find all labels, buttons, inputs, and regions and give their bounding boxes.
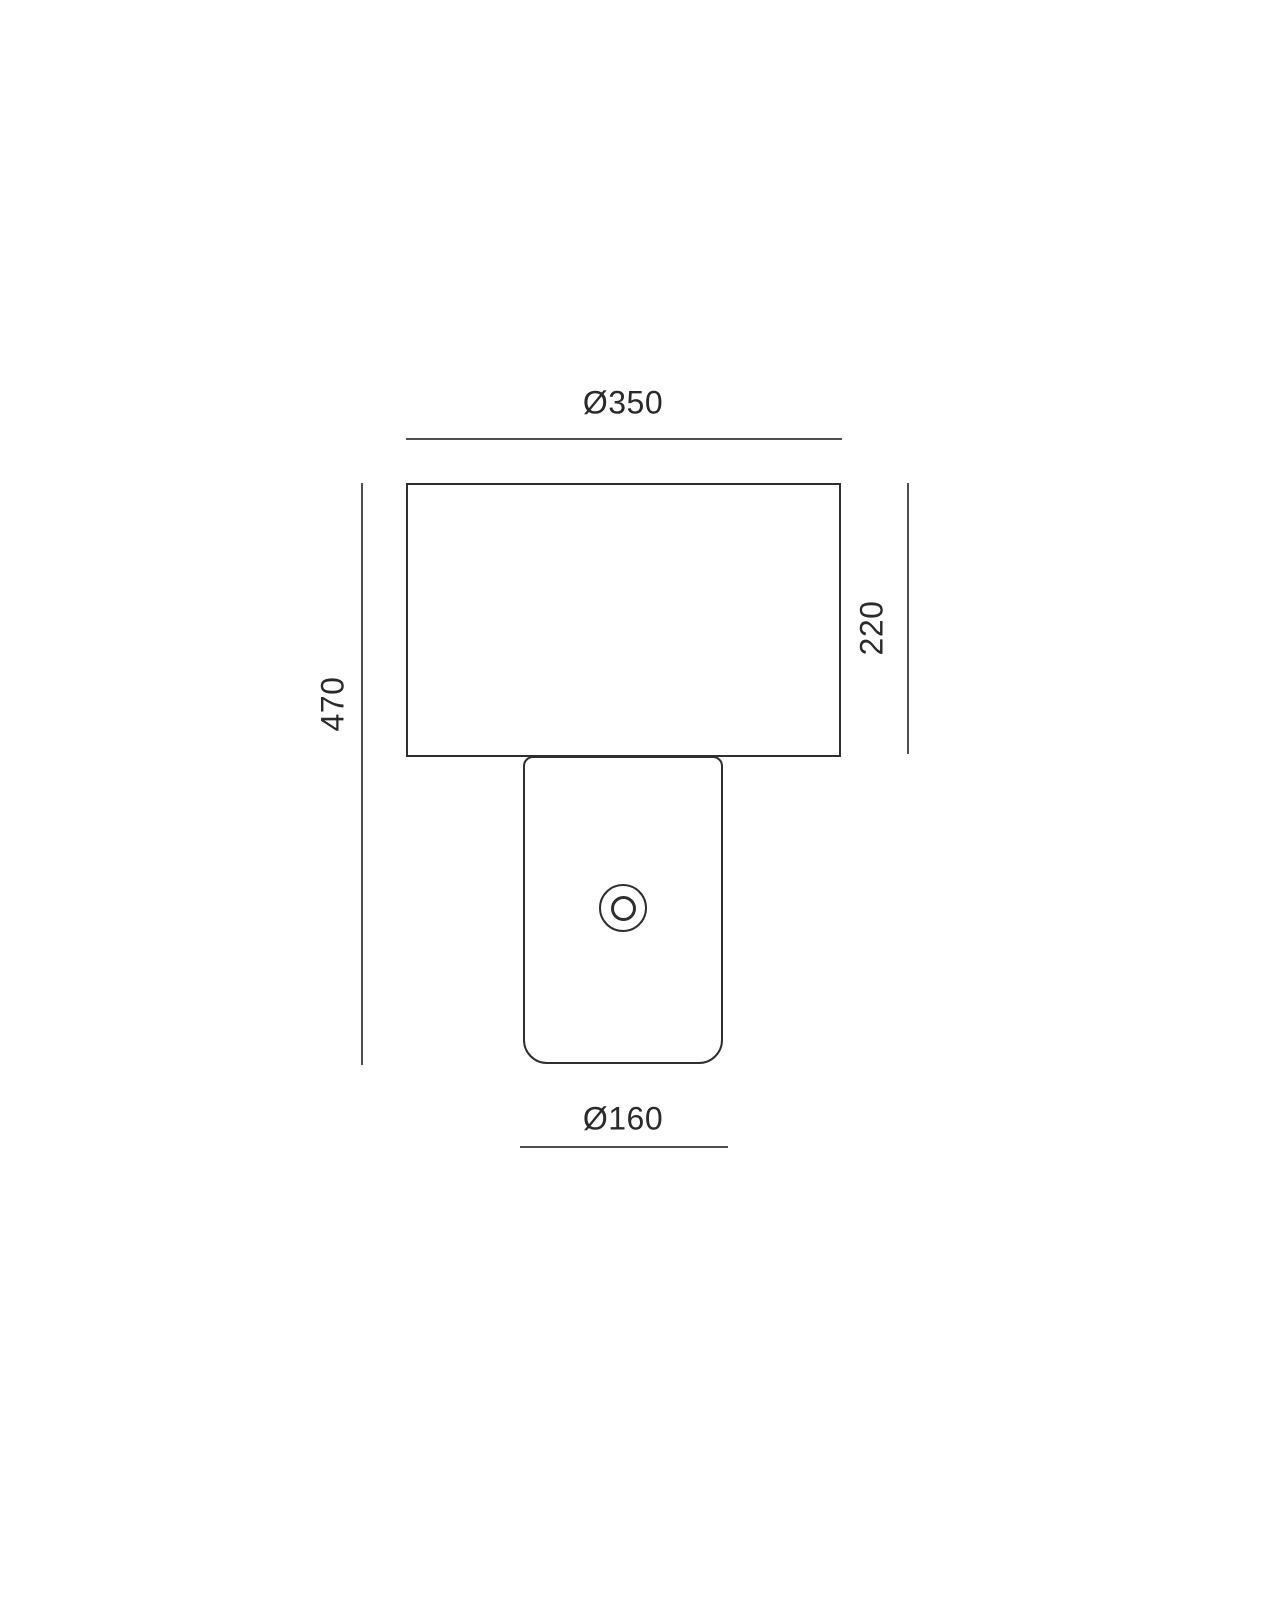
base-diameter-label: Ø160	[583, 1101, 663, 1138]
switch-knob-inner-circle-icon	[611, 896, 636, 921]
total-height-label: 470	[315, 677, 352, 732]
total-height-dim-line	[361, 483, 363, 1065]
shade-diameter-label: Ø350	[583, 385, 663, 422]
lamp-shade-outline	[406, 483, 841, 757]
shade-diameter-dim-line	[406, 438, 842, 440]
base-diameter-dim-line	[520, 1146, 728, 1148]
dimension-drawing-canvas: Ø350 470 220 Ø160	[0, 0, 1280, 1600]
shade-height-dim-line	[907, 483, 909, 754]
shade-height-label: 220	[854, 601, 891, 656]
